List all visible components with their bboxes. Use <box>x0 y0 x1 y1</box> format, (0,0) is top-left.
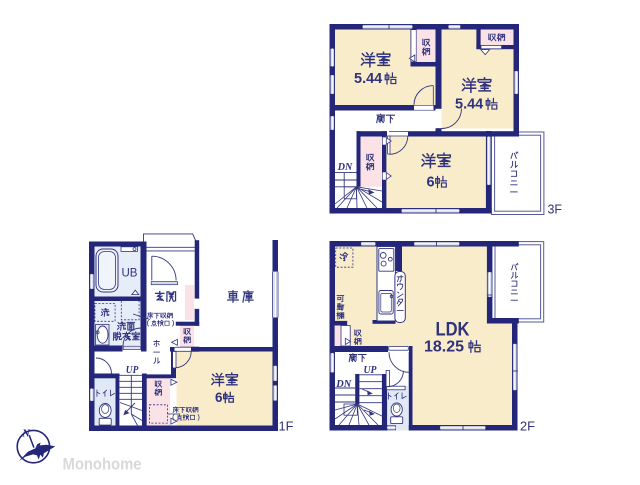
svg-text:LDK: LDK <box>436 320 470 341</box>
svg-text:6: 6 <box>427 175 435 191</box>
svg-text:N: N <box>21 429 30 440</box>
svg-text:6: 6 <box>215 390 223 405</box>
svg-text:3F: 3F <box>548 203 563 217</box>
svg-text:DN: DN <box>337 161 353 173</box>
svg-text:5.44: 5.44 <box>455 97 483 113</box>
svg-text:5.44: 5.44 <box>354 71 382 87</box>
svg-text:UB: UB <box>122 268 138 280</box>
svg-text:1F: 1F <box>279 420 294 434</box>
svg-text:UP: UP <box>364 364 377 376</box>
svg-text:18.25: 18.25 <box>424 339 464 356</box>
svg-text:UP: UP <box>126 364 139 376</box>
svg-text:2F: 2F <box>520 420 535 434</box>
svg-text:DN: DN <box>335 378 352 390</box>
svg-text:Monohome: Monohome <box>63 456 142 474</box>
